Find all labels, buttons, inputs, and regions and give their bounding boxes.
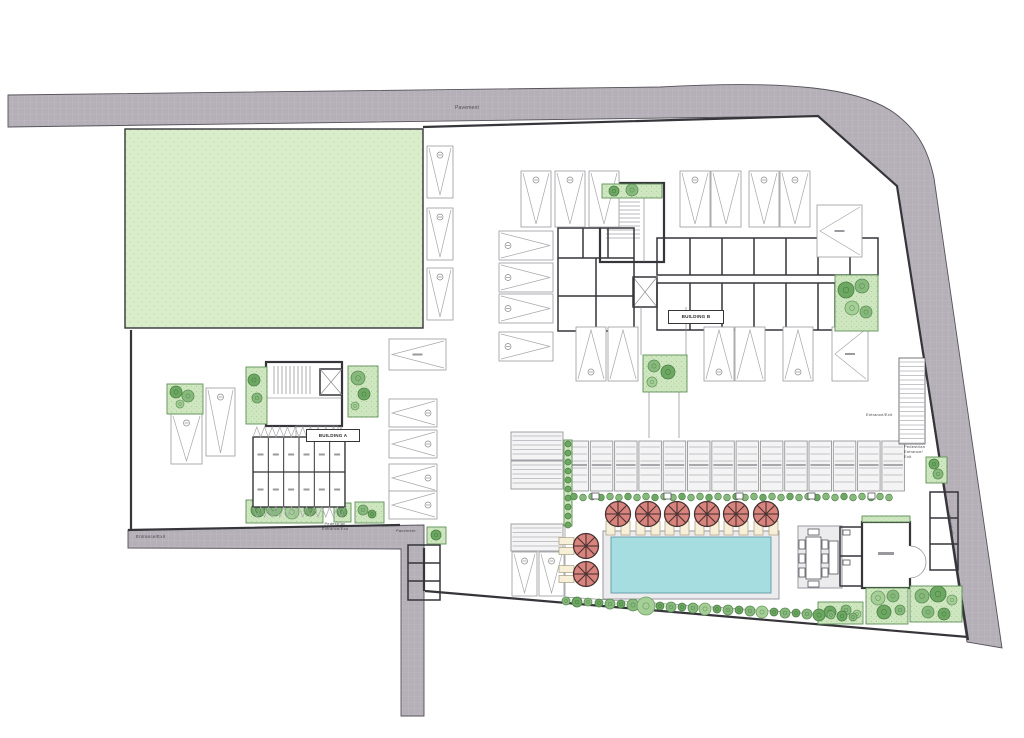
pergola-bay <box>882 441 905 491</box>
building-a-stair-core <box>266 362 342 426</box>
tree-icon <box>837 611 847 621</box>
tree-icon <box>595 599 603 607</box>
pergola-bay <box>712 441 735 491</box>
parking-bay <box>780 171 810 227</box>
shrub-icon <box>877 493 884 500</box>
tree-icon <box>756 606 768 618</box>
tree-icon <box>368 510 376 518</box>
shrub-icon <box>565 477 571 483</box>
label-entrance-exit-right: Entrance/Exit <box>866 412 892 417</box>
label-pedestrian-entrance-center: Pedestrian Entrance/Exit <box>312 521 358 531</box>
parking-bay <box>499 263 553 292</box>
site-plan: Pavement BUILDING A BUILDING B Entrance/… <box>0 0 1024 738</box>
building-b-elevator-x <box>633 277 657 307</box>
sun-lounger <box>559 548 574 555</box>
tree-icon <box>849 613 857 621</box>
tree-icon <box>584 598 592 606</box>
tree-row <box>562 597 857 621</box>
umbrella-lounger <box>665 502 690 536</box>
umbrella-lounger <box>606 502 631 536</box>
tree-icon <box>170 386 182 398</box>
parking-bay <box>427 146 453 198</box>
unit-label-mark <box>303 454 309 456</box>
tree-icon <box>827 611 835 619</box>
parking-bay <box>711 171 741 227</box>
tree-icon <box>666 602 676 612</box>
planter-bed <box>835 275 878 331</box>
large-parking-bay <box>817 205 862 257</box>
bay-label-mark <box>413 354 423 356</box>
pool-house-double-door <box>910 546 926 578</box>
parking-bay <box>389 399 437 427</box>
planter-box <box>664 493 671 499</box>
parking-bay <box>576 327 606 381</box>
tree-icon <box>938 608 950 620</box>
tree-icon <box>176 400 184 408</box>
unit-label-mark <box>273 454 279 456</box>
shrub-icon <box>565 486 571 492</box>
label-building-a: BUILDING A <box>306 429 360 442</box>
tree-icon <box>648 360 660 372</box>
shrub-icon <box>778 494 785 501</box>
shrub-icon <box>565 441 571 447</box>
wc-fixture <box>843 530 850 535</box>
tree-icon <box>780 608 790 618</box>
tree-icon <box>351 371 365 385</box>
bay-label-mark <box>835 230 845 232</box>
planter-bed <box>348 366 378 417</box>
shrub-icon <box>565 468 571 474</box>
shrub-icon <box>850 494 857 501</box>
parking-bay <box>499 294 553 323</box>
parking-bay <box>608 327 638 381</box>
tree-icon <box>713 605 721 613</box>
tree-icon <box>431 530 441 540</box>
lawn-area <box>125 129 423 328</box>
shrub-icon <box>841 493 848 500</box>
tree-icon <box>871 591 885 605</box>
tree-icon <box>802 609 812 619</box>
parking-bay <box>206 388 235 456</box>
unit-label-mark <box>319 454 325 456</box>
shrub-icon <box>565 522 571 528</box>
tree-icon <box>661 365 675 379</box>
umbrella-lounger <box>754 502 779 536</box>
tree-icon <box>895 605 905 615</box>
parking-bay <box>555 171 585 227</box>
shrub-icon <box>571 493 578 500</box>
umbrella-lounger <box>724 502 749 536</box>
parking-bay <box>521 171 551 227</box>
dining-table <box>806 537 821 579</box>
shrub-icon <box>652 494 659 501</box>
tree-icon <box>838 282 854 298</box>
garden-bed <box>866 588 908 624</box>
unit-label-mark <box>334 454 340 456</box>
swimming-pool <box>611 537 771 593</box>
label-building-b: BUILDING B <box>668 310 724 324</box>
unit-label-mark <box>258 454 264 456</box>
parking-bay <box>589 171 619 227</box>
sun-lounger <box>559 538 574 545</box>
pool-bar-counter <box>829 541 838 574</box>
shrub-icon <box>769 493 776 500</box>
parking-bay <box>389 430 437 458</box>
parking-bay <box>389 491 437 519</box>
tree-icon <box>845 301 859 315</box>
tree-icon <box>688 603 698 613</box>
tree-icon <box>562 597 570 605</box>
unit-label-mark <box>319 489 325 491</box>
tree-icon <box>252 393 262 403</box>
unit-label-mark <box>334 489 340 491</box>
label-entrance-exit-left: Entrance/Exit <box>136 534 165 540</box>
parking-bay <box>171 414 202 464</box>
planter-bed <box>427 527 446 544</box>
parking-bay <box>783 327 813 381</box>
bay-label-mark <box>845 353 855 355</box>
tree-icon <box>617 600 625 608</box>
tree-icon <box>929 459 939 469</box>
shrub-icon <box>715 493 722 500</box>
tree-icon <box>855 279 869 293</box>
unit-label-mark <box>273 489 279 491</box>
tree-icon <box>605 599 615 609</box>
shrub-icon <box>787 493 794 500</box>
shrub-icon <box>823 493 830 500</box>
planter-box <box>868 493 875 499</box>
unit-label-mark <box>303 489 309 491</box>
shrub-icon <box>859 493 866 500</box>
sun-lounger <box>559 576 574 583</box>
shrub-icon <box>886 494 893 501</box>
shrub-icon <box>580 494 587 501</box>
tree-icon <box>735 606 743 614</box>
shrub-row <box>571 493 893 501</box>
planter-bed <box>862 516 910 522</box>
parking-bay <box>735 327 765 381</box>
pergola-bay <box>663 441 686 491</box>
tree-icon <box>647 377 657 387</box>
shrub-icon <box>832 494 839 501</box>
tree-icon <box>351 402 359 410</box>
parking-bay <box>512 552 537 596</box>
planter-box <box>808 493 815 499</box>
shrub-icon <box>679 493 686 500</box>
tree-icon <box>813 609 825 621</box>
sun-lounger <box>559 566 574 573</box>
unit-label-mark <box>288 454 294 456</box>
shrub-icon <box>796 494 803 501</box>
shrub-icon <box>643 493 650 500</box>
wc-fixture <box>843 560 850 565</box>
parking-bay <box>389 464 437 492</box>
pergola-bay <box>736 441 759 491</box>
planter-bed <box>602 184 662 198</box>
large-parking-bay <box>832 327 868 381</box>
pergola-bay <box>590 441 613 491</box>
shrub-icon <box>724 494 731 501</box>
tree-icon <box>699 603 711 615</box>
tree-icon <box>637 597 655 615</box>
label-pedestrian-entrance-right: Pedestrian Entrance/ Exit <box>904 444 925 459</box>
tree-icon <box>248 374 260 386</box>
parking-bay <box>499 231 553 260</box>
large-parking-bay <box>389 339 446 370</box>
label-pavement-top: Pavement <box>455 105 479 111</box>
slatted-structure <box>511 524 563 551</box>
tree-icon <box>358 505 368 515</box>
tree-icon <box>877 605 891 619</box>
planter-bed <box>246 367 267 424</box>
pool-house-label-mark <box>878 552 894 555</box>
parking-bay <box>427 268 453 320</box>
tree-icon <box>860 306 872 318</box>
pergola-bay <box>785 441 808 491</box>
parking-bay <box>749 171 779 227</box>
pergola-bay <box>639 441 662 491</box>
tree-icon <box>678 603 686 611</box>
umbrella-lounger <box>695 502 720 536</box>
tree-icon <box>770 608 778 616</box>
tree-icon <box>626 184 638 196</box>
tree-icon <box>887 590 899 602</box>
road-bottom-left <box>128 525 424 716</box>
tree-icon <box>745 606 755 616</box>
tree-icon <box>947 595 957 605</box>
parking-bay <box>427 208 453 260</box>
unit-label-mark <box>258 489 264 491</box>
slatted-structure <box>511 461 563 489</box>
slatted-structure <box>511 432 563 460</box>
parking-bay <box>704 327 734 381</box>
pergola-bay <box>858 441 881 491</box>
tree-icon <box>922 606 934 618</box>
garden-bed <box>910 586 962 622</box>
shrub-icon <box>760 494 767 501</box>
shrub-icon <box>607 493 614 500</box>
shrub-icon <box>625 493 632 500</box>
shrub-icon <box>688 494 695 501</box>
planter-bed <box>926 457 947 483</box>
parking-bay <box>539 552 564 596</box>
shrub-icon <box>565 450 571 456</box>
planter-bed <box>355 502 384 523</box>
umbrella-lounger <box>636 502 661 536</box>
tree-icon <box>358 388 370 400</box>
parking-bay <box>680 171 710 227</box>
shrub-icon <box>697 493 704 500</box>
pergola-bay <box>809 441 832 491</box>
pergola-bay <box>760 441 783 491</box>
pergola-bay <box>615 441 638 491</box>
tree-icon <box>656 602 664 610</box>
planter-box <box>592 493 599 499</box>
tree-icon <box>572 597 582 607</box>
planter-bed <box>167 384 203 414</box>
tree-icon <box>915 589 929 603</box>
tree-icon <box>930 586 946 602</box>
shrub-icon <box>706 494 713 501</box>
stepped-walkway <box>899 358 925 444</box>
shrub-icon <box>565 504 571 510</box>
unit-label-mark <box>288 489 294 491</box>
hedge-strip <box>564 440 572 528</box>
shrub-icon <box>565 459 571 465</box>
label-pavement-center: Pavement <box>396 528 416 533</box>
shrub-icon <box>565 513 571 519</box>
pergola-bay <box>833 441 856 491</box>
shrub-icon <box>751 493 758 500</box>
pergola-bay <box>688 441 711 491</box>
tree-icon <box>792 609 800 617</box>
planter-bed <box>643 355 687 392</box>
tree-icon <box>609 186 619 196</box>
building-a <box>266 362 342 438</box>
shrub-icon <box>565 495 571 501</box>
parking-bay <box>499 332 553 361</box>
site-plan-drawing <box>0 0 1024 738</box>
shrub-icon <box>634 494 641 501</box>
shrub-icon <box>616 494 623 501</box>
tree-icon <box>933 469 943 479</box>
tree-icon <box>723 605 733 615</box>
planter-box <box>736 493 743 499</box>
tree-icon <box>182 390 194 402</box>
